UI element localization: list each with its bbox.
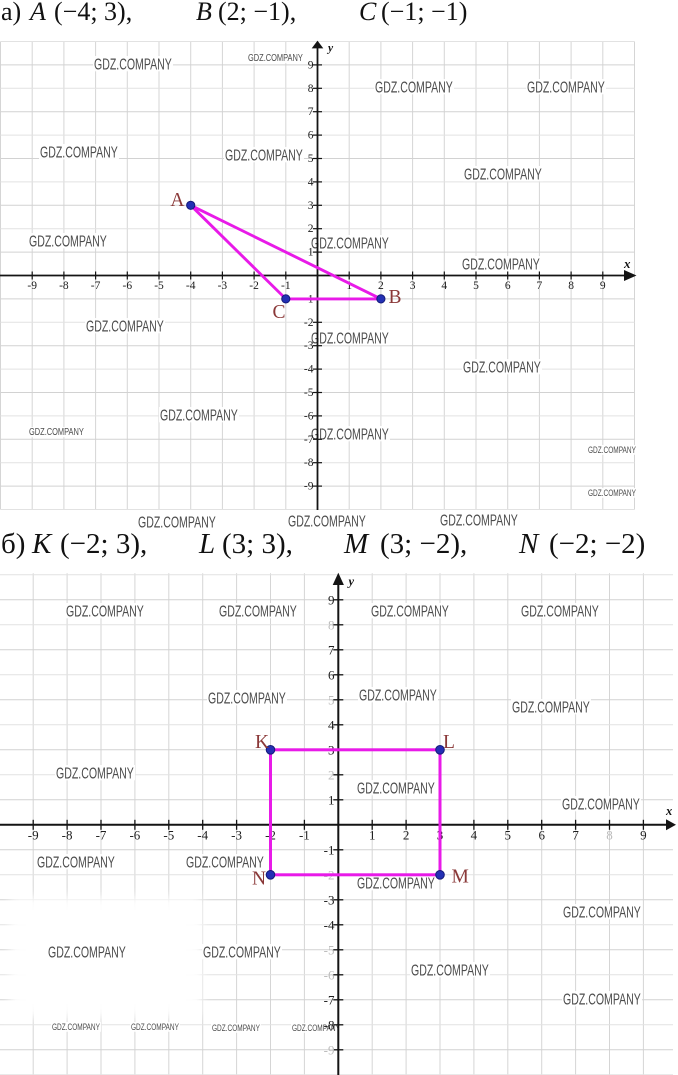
- svg-text:-1: -1: [324, 842, 335, 857]
- svg-text:8: 8: [328, 617, 335, 632]
- svg-text:(−1; −1): (−1; −1): [381, 0, 467, 26]
- svg-text:-7: -7: [324, 992, 335, 1007]
- svg-text:K: K: [31, 528, 53, 560]
- svg-text:4: 4: [441, 280, 447, 292]
- svg-text:GDZ.COMPANY: GDZ.COMPANY: [311, 234, 389, 252]
- svg-text:GDZ.COMPANY: GDZ.COMPANY: [527, 78, 605, 96]
- svg-text:-1: -1: [281, 280, 291, 292]
- svg-text:1: 1: [308, 247, 314, 259]
- svg-text:GDZ.COMPANY: GDZ.COMPANY: [160, 406, 238, 424]
- svg-text:GDZ.COMPANY: GDZ.COMPANY: [463, 358, 541, 376]
- svg-text:GDZ.COMPANY: GDZ.COMPANY: [29, 232, 107, 250]
- svg-text:L: L: [198, 528, 215, 560]
- svg-text:GDZ.COMPANY: GDZ.COMPANY: [29, 426, 84, 437]
- svg-text:6: 6: [308, 130, 314, 142]
- svg-text:7: 7: [328, 642, 335, 657]
- svg-text:-8: -8: [59, 280, 69, 292]
- svg-text:GDZ.COMPANY: GDZ.COMPANY: [464, 165, 542, 183]
- svg-text:GDZ.COMPANY: GDZ.COMPANY: [203, 943, 281, 961]
- svg-text:6: 6: [328, 667, 335, 682]
- svg-text:-8: -8: [62, 828, 73, 843]
- svg-text:-4: -4: [324, 917, 335, 932]
- svg-text:-5: -5: [163, 828, 174, 843]
- svg-text:8: 8: [568, 280, 574, 292]
- svg-text:GDZ.COMPANY: GDZ.COMPANY: [562, 795, 640, 813]
- svg-text:-2: -2: [249, 280, 259, 292]
- svg-text:GDZ.COMPANY: GDZ.COMPANY: [588, 445, 636, 455]
- svg-text:GDZ.COMPANY: GDZ.COMPANY: [512, 698, 590, 716]
- svg-text:GDZ.COMPANY: GDZ.COMPANY: [563, 903, 641, 921]
- svg-text:-1: -1: [299, 828, 310, 843]
- svg-text:GDZ.COMPANY: GDZ.COMPANY: [94, 55, 172, 73]
- svg-text:L: L: [443, 732, 455, 753]
- svg-text:а): а): [1, 0, 21, 26]
- svg-text:-6: -6: [123, 280, 133, 292]
- svg-text:2: 2: [378, 280, 384, 292]
- svg-text:GDZ.COMPANY: GDZ.COMPANY: [52, 1022, 100, 1032]
- svg-text:3: 3: [410, 280, 416, 292]
- svg-text:-9: -9: [304, 481, 314, 493]
- svg-text:GDZ.COMPANY: GDZ.COMPANY: [66, 602, 144, 620]
- svg-text:GDZ.COMPANY: GDZ.COMPANY: [375, 78, 453, 96]
- svg-text:б): б): [1, 528, 25, 560]
- svg-text:7: 7: [537, 280, 543, 292]
- svg-text:9: 9: [328, 592, 335, 607]
- svg-text:-7: -7: [91, 280, 101, 292]
- svg-text:GDZ.COMPANY: GDZ.COMPANY: [48, 943, 126, 961]
- svg-text:GDZ.COMPANY: GDZ.COMPANY: [131, 1022, 179, 1032]
- svg-text:5: 5: [328, 692, 335, 707]
- svg-text:-7: -7: [304, 434, 314, 446]
- svg-text:GDZ.COMPANY: GDZ.COMPANY: [37, 853, 115, 871]
- svg-text:-3: -3: [231, 828, 242, 843]
- svg-text:1: 1: [328, 792, 335, 807]
- svg-text:A: A: [170, 190, 184, 211]
- svg-text:5: 5: [308, 153, 314, 165]
- svg-text:-9: -9: [28, 828, 39, 843]
- svg-text:(3; −2),: (3; −2),: [380, 528, 467, 560]
- svg-text:4: 4: [328, 717, 335, 732]
- svg-text:y: y: [347, 575, 355, 589]
- svg-text:-5: -5: [324, 942, 335, 957]
- svg-text:GDZ.COMPANY: GDZ.COMPANY: [357, 779, 435, 797]
- svg-text:8: 8: [308, 83, 314, 95]
- svg-text:(−2; −2): (−2; −2): [549, 528, 645, 560]
- svg-text:-7: -7: [96, 828, 107, 843]
- svg-text:-4: -4: [197, 828, 208, 843]
- svg-text:M: M: [343, 528, 370, 560]
- svg-text:GDZ.COMPANY: GDZ.COMPANY: [56, 764, 134, 782]
- svg-text:9: 9: [308, 59, 314, 71]
- svg-text:(−4; 3),: (−4; 3),: [54, 0, 132, 26]
- svg-text:9: 9: [640, 828, 647, 843]
- svg-text:-5: -5: [154, 280, 164, 292]
- svg-text:2: 2: [308, 223, 314, 235]
- svg-text:-6: -6: [324, 967, 335, 982]
- svg-text:-8: -8: [324, 1017, 335, 1032]
- svg-text:6: 6: [538, 828, 545, 843]
- svg-text:GDZ.COMPANY: GDZ.COMPANY: [521, 602, 599, 620]
- svg-text:5: 5: [505, 828, 512, 843]
- svg-text:-8: -8: [304, 457, 314, 469]
- svg-text:GDZ.COMPANY: GDZ.COMPANY: [86, 317, 164, 335]
- svg-text:-4: -4: [304, 364, 314, 376]
- svg-text:GDZ.COMPANY: GDZ.COMPANY: [225, 146, 303, 164]
- svg-text:3: 3: [308, 200, 314, 212]
- svg-text:(2; −1),: (2; −1),: [218, 0, 296, 26]
- svg-text:-3: -3: [304, 340, 314, 352]
- svg-text:-3: -3: [218, 280, 228, 292]
- svg-text:GDZ.COMPANY: GDZ.COMPANY: [311, 425, 389, 443]
- svg-text:K: K: [255, 732, 269, 753]
- svg-text:GDZ.COMPANY: GDZ.COMPANY: [462, 255, 540, 273]
- svg-text:C: C: [273, 302, 286, 323]
- svg-text:C: C: [359, 0, 377, 26]
- svg-text:GDZ.COMPANY: GDZ.COMPANY: [212, 1023, 260, 1033]
- svg-text:4: 4: [471, 828, 478, 843]
- svg-text:-3: -3: [324, 892, 335, 907]
- svg-text:N: N: [518, 528, 540, 560]
- svg-text:B: B: [389, 287, 402, 308]
- svg-text:2: 2: [403, 828, 410, 843]
- svg-text:(−2; 3),: (−2; 3),: [60, 528, 147, 560]
- svg-text:GDZ.COMPANY: GDZ.COMPANY: [411, 961, 489, 979]
- svg-text:-4: -4: [186, 280, 196, 292]
- svg-text:GDZ.COMPANY: GDZ.COMPANY: [219, 602, 297, 620]
- svg-text:GDZ.COMPANY: GDZ.COMPANY: [440, 511, 518, 529]
- svg-text:-6: -6: [129, 828, 140, 843]
- svg-text:4: 4: [308, 176, 314, 188]
- svg-text:1: 1: [369, 828, 376, 843]
- svg-text:7: 7: [572, 828, 579, 843]
- svg-text:-9: -9: [27, 280, 37, 292]
- svg-text:GDZ.COMPANY: GDZ.COMPANY: [208, 689, 286, 707]
- svg-text:GDZ.COMPANY: GDZ.COMPANY: [359, 686, 437, 704]
- svg-text:(3; 3),: (3; 3),: [222, 528, 293, 560]
- svg-text:GDZ.COMPANY: GDZ.COMPANY: [588, 488, 636, 498]
- svg-text:GDZ.COMPANY: GDZ.COMPANY: [40, 143, 118, 161]
- svg-text:GDZ.COMPANY: GDZ.COMPANY: [248, 52, 303, 63]
- svg-text:9: 9: [600, 280, 606, 292]
- svg-text:6: 6: [505, 280, 511, 292]
- svg-text:x: x: [665, 804, 672, 818]
- svg-text:7: 7: [308, 106, 314, 118]
- svg-text:-6: -6: [304, 410, 314, 422]
- svg-text:GDZ.COMPANY: GDZ.COMPANY: [371, 602, 449, 620]
- svg-text:5: 5: [473, 280, 479, 292]
- svg-text:N: N: [252, 869, 266, 890]
- svg-text:GDZ.COMPANY: GDZ.COMPANY: [311, 329, 389, 347]
- svg-text:8: 8: [606, 828, 613, 843]
- svg-text:A: A: [28, 0, 46, 26]
- svg-text:M: M: [452, 867, 469, 888]
- svg-text:2: 2: [328, 767, 335, 782]
- svg-text:-5: -5: [304, 387, 314, 399]
- svg-text:-2: -2: [304, 317, 314, 329]
- svg-text:B: B: [196, 0, 212, 26]
- svg-text:GDZ.COMPANY: GDZ.COMPANY: [357, 874, 435, 892]
- svg-text:GDZ.COMPANY: GDZ.COMPANY: [563, 990, 641, 1008]
- svg-text:-9: -9: [324, 1042, 335, 1057]
- svg-text:x: x: [623, 256, 631, 271]
- svg-text:y: y: [326, 43, 334, 55]
